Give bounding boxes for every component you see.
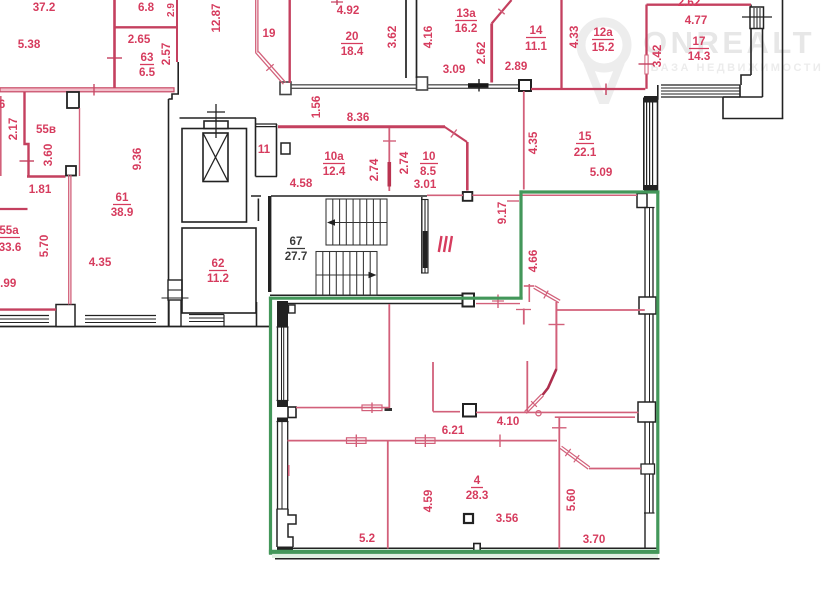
- svg-text:33.6: 33.6: [0, 241, 22, 254]
- svg-text:3.56: 3.56: [496, 512, 519, 525]
- svg-text:2.9: 2.9: [166, 3, 177, 17]
- svg-text:6.8: 6.8: [138, 1, 155, 14]
- svg-text:22.1: 22.1: [574, 146, 597, 159]
- svg-text:5.38: 5.38: [18, 38, 41, 51]
- svg-text:2.74: 2.74: [398, 151, 411, 174]
- svg-text:4.92: 4.92: [337, 4, 360, 17]
- svg-text:БАЗА НЕДВИЖИМОСТИ: БАЗА НЕДВИЖИМОСТИ: [651, 62, 824, 74]
- svg-text:11: 11: [258, 143, 271, 156]
- svg-text:6: 6: [0, 98, 6, 111]
- svg-text:4.58: 4.58: [290, 177, 313, 190]
- svg-text:13а: 13а: [456, 7, 476, 20]
- svg-text:3.01: 3.01: [414, 178, 437, 191]
- svg-text:1.56: 1.56: [310, 95, 323, 118]
- svg-text:10: 10: [423, 150, 436, 163]
- svg-text:4.59: 4.59: [422, 489, 435, 512]
- svg-text:6.5: 6.5: [139, 66, 156, 79]
- svg-text:3.70: 3.70: [583, 533, 606, 546]
- svg-text:3.60: 3.60: [42, 144, 55, 167]
- svg-text:ONREALT: ONREALT: [643, 25, 815, 60]
- svg-text:55а: 55а: [0, 224, 19, 237]
- svg-text:16.2: 16.2: [455, 22, 478, 35]
- svg-text:55в: 55в: [36, 123, 56, 136]
- svg-text:20: 20: [346, 30, 359, 43]
- svg-text:27.7: 27.7: [285, 250, 308, 263]
- svg-text:28.3: 28.3: [466, 489, 489, 502]
- svg-text:6.21: 6.21: [442, 424, 465, 437]
- svg-text:62: 62: [212, 257, 225, 270]
- svg-text:4.35: 4.35: [527, 131, 540, 154]
- svg-text:2.62: 2.62: [678, 0, 701, 9]
- svg-text:17: 17: [693, 35, 706, 48]
- svg-text:3.42: 3.42: [651, 45, 664, 68]
- svg-text:5.70: 5.70: [38, 235, 51, 258]
- svg-text:4.16: 4.16: [422, 25, 435, 48]
- svg-text:2.17: 2.17: [7, 118, 20, 141]
- svg-text:14.3: 14.3: [688, 50, 711, 63]
- svg-text:3.09: 3.09: [443, 63, 466, 76]
- svg-text:4.35: 4.35: [89, 256, 112, 269]
- svg-text:8.36: 8.36: [347, 111, 370, 124]
- svg-text:11.1: 11.1: [525, 40, 547, 53]
- svg-text:4.66: 4.66: [527, 249, 540, 272]
- svg-text:9.36: 9.36: [131, 147, 144, 170]
- svg-text:19: 19: [263, 27, 276, 40]
- svg-text:2.89: 2.89: [505, 60, 528, 73]
- svg-text:5.60: 5.60: [565, 489, 578, 512]
- svg-text:67: 67: [290, 235, 303, 248]
- svg-text:12.4: 12.4: [323, 165, 346, 178]
- svg-text:2.65: 2.65: [128, 33, 151, 46]
- svg-text:2.62: 2.62: [475, 42, 488, 65]
- svg-text:2.74: 2.74: [368, 158, 381, 181]
- svg-text:5.2: 5.2: [359, 532, 375, 545]
- svg-text:5.09: 5.09: [590, 166, 613, 179]
- svg-text:4: 4: [474, 474, 481, 487]
- svg-text:38.9: 38.9: [111, 206, 134, 219]
- svg-text:11.2: 11.2: [207, 272, 229, 285]
- svg-text:15: 15: [579, 130, 592, 143]
- svg-text:9.17: 9.17: [496, 202, 509, 225]
- svg-text:10а: 10а: [324, 150, 344, 163]
- svg-text:61: 61: [116, 191, 129, 204]
- svg-text:14: 14: [530, 24, 543, 37]
- svg-text:3.99: 3.99: [0, 277, 17, 290]
- svg-text:15.2: 15.2: [592, 41, 615, 54]
- svg-text:1.81: 1.81: [29, 183, 52, 196]
- svg-text:8.5: 8.5: [420, 165, 437, 178]
- svg-text:18.4: 18.4: [341, 45, 364, 58]
- svg-text:12.87: 12.87: [210, 3, 223, 32]
- svg-text:37.2: 37.2: [33, 1, 56, 14]
- svg-text:12а: 12а: [593, 26, 613, 39]
- svg-text:2.57: 2.57: [160, 43, 173, 66]
- svg-text:4.10: 4.10: [497, 415, 520, 428]
- svg-text:4.77: 4.77: [685, 14, 708, 27]
- svg-text:63: 63: [141, 51, 154, 64]
- svg-text:4.33: 4.33: [568, 25, 581, 48]
- svg-text:3.62: 3.62: [386, 26, 399, 49]
